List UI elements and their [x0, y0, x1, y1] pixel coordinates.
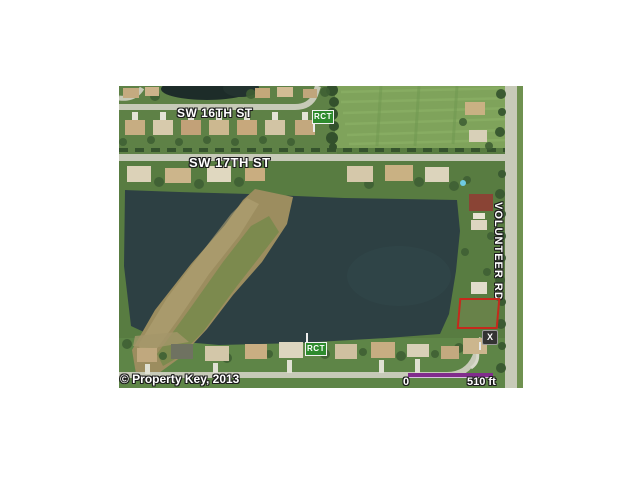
- aerial-map[interactable]: SW 16TH ST SW 17TH ST VOLUNTEER RD RCT R…: [119, 86, 523, 388]
- street-label-sw-17th-st: SW 17TH ST: [189, 155, 271, 170]
- page-canvas: SW 16TH ST SW 17TH ST VOLUNTEER RD RCT R…: [0, 0, 640, 480]
- copyright-notice: © Property Key, 2013: [120, 372, 239, 386]
- parcel-outline[interactable]: [457, 298, 501, 329]
- street-label-volunteer-rd: VOLUNTEER RD: [492, 202, 504, 301]
- scale-end-label: 510 ft: [467, 376, 496, 388]
- street-label-sw-16th-st: SW 16TH ST: [177, 106, 253, 120]
- rct-sign-bottom[interactable]: RCT: [305, 342, 327, 356]
- x-marker[interactable]: X: [482, 330, 498, 345]
- scale-start-label: 0: [403, 376, 409, 388]
- rct-sign-top[interactable]: RCT: [312, 110, 334, 124]
